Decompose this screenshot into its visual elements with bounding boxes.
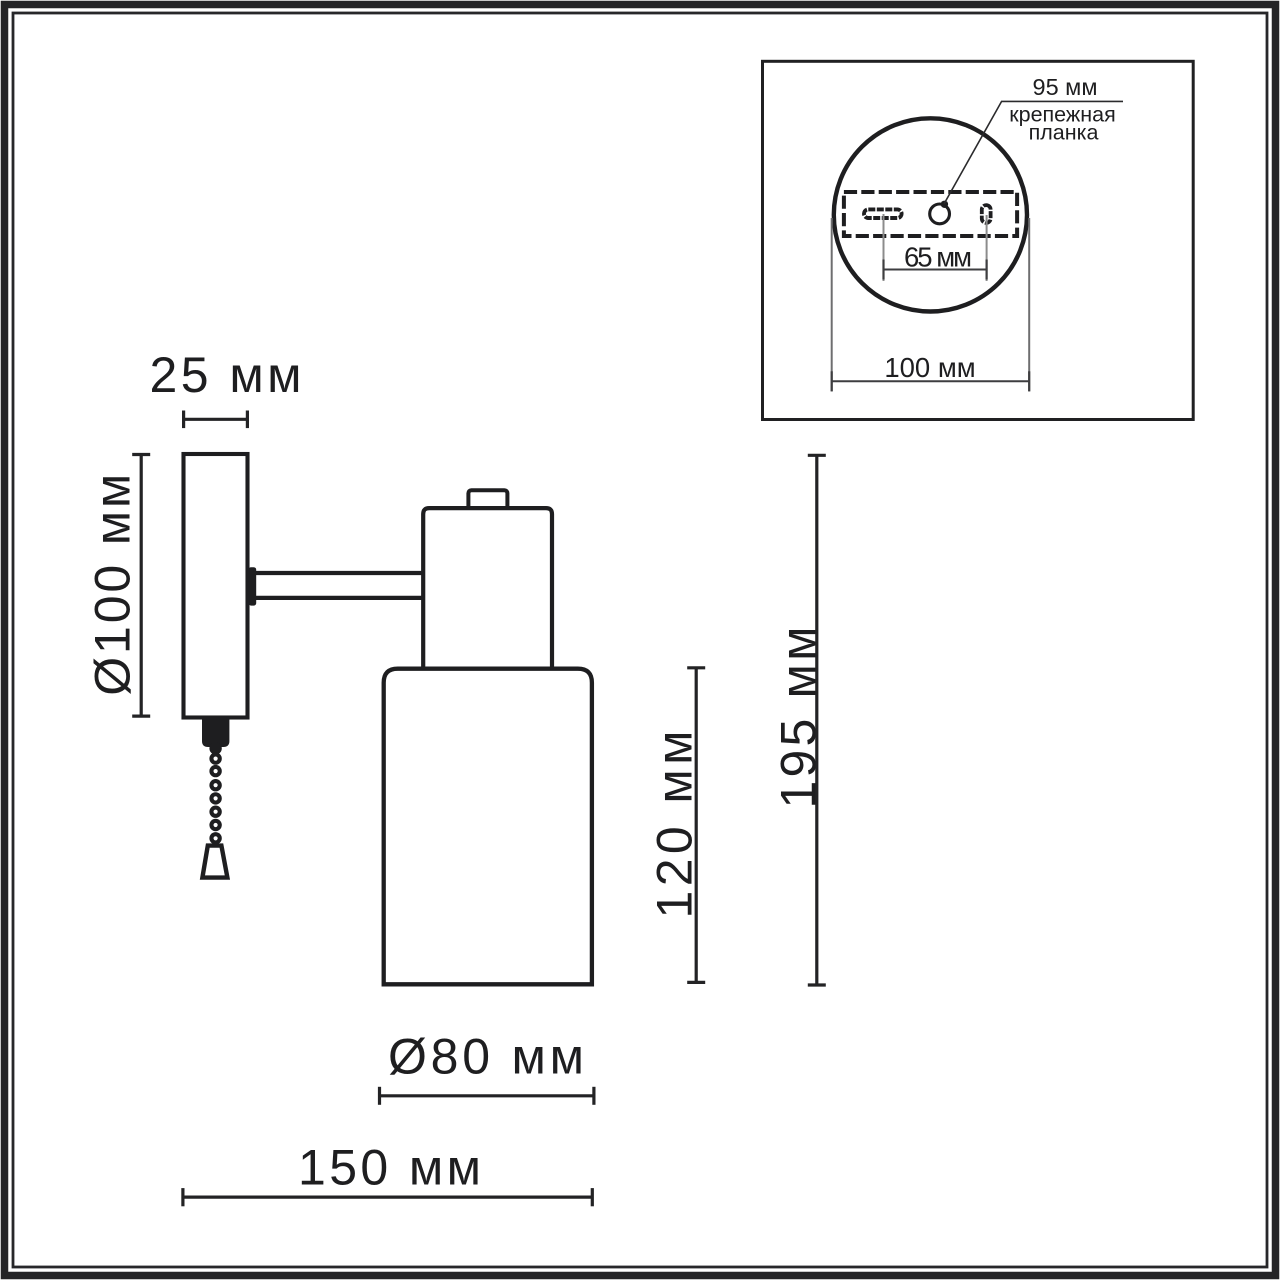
- svg-text:65 мм: 65 мм: [904, 242, 972, 273]
- svg-text:100 мм: 100 мм: [884, 352, 975, 383]
- svg-text:Ø80 мм: Ø80 мм: [388, 1029, 584, 1085]
- svg-text:Ø100 мм: Ø100 мм: [85, 474, 141, 696]
- svg-text:95 мм: 95 мм: [1033, 74, 1098, 100]
- svg-text:25 мм: 25 мм: [150, 347, 302, 403]
- svg-text:планка: планка: [1029, 120, 1099, 144]
